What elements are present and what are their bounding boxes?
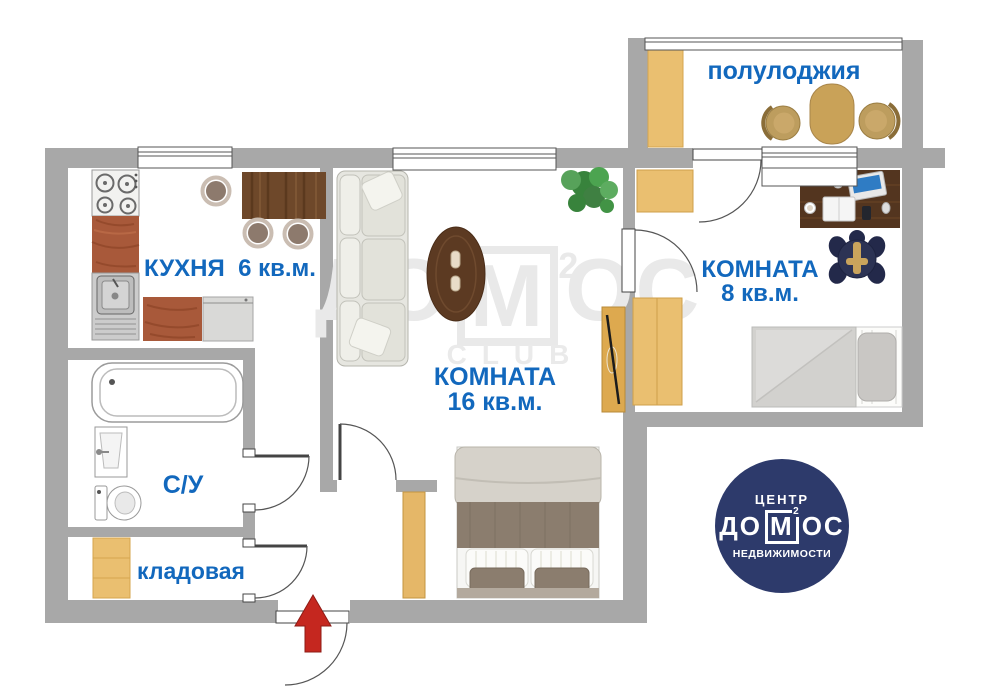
- room8-balcony-window: [762, 147, 857, 186]
- kitchen-label: КУХНЯ 6 кв.м.: [140, 256, 320, 281]
- balcony-label: полулоджия: [694, 58, 874, 84]
- logo-sup: 2: [792, 507, 802, 517]
- floor-plan: ДОМ2ОС CLUB: [0, 0, 1000, 698]
- room8-area-label: 8 кв.м.: [660, 281, 860, 306]
- room16-area-label: 16 кв.м.: [395, 389, 595, 415]
- room8-label: КОМНАТА: [660, 257, 860, 282]
- room16-window: [393, 148, 556, 170]
- logo-m-box: М2: [765, 510, 799, 543]
- openings-layer: [0, 0, 1000, 698]
- balcony-door: [693, 149, 762, 222]
- bathroom-label: С/У: [143, 472, 223, 498]
- logo-bottom-text: НЕДВИЖИМОСТИ: [733, 548, 831, 560]
- agency-logo: ЦЕНТР ДОМ2ОС НЕДВИЖИМОСТИ: [715, 459, 849, 593]
- kitchen-window: [138, 147, 232, 168]
- room16-label: КОМНАТА: [395, 364, 595, 390]
- storage-label: кладовая: [116, 559, 266, 583]
- entrance-arrow-icon: [295, 595, 331, 652]
- logo-top-text: ЦЕНТР: [755, 492, 809, 507]
- bathroom-door: [243, 449, 309, 512]
- balcony-top-window: [645, 38, 902, 50]
- room16-door: [340, 424, 396, 480]
- logo-name: ДОМ2ОС: [719, 510, 844, 543]
